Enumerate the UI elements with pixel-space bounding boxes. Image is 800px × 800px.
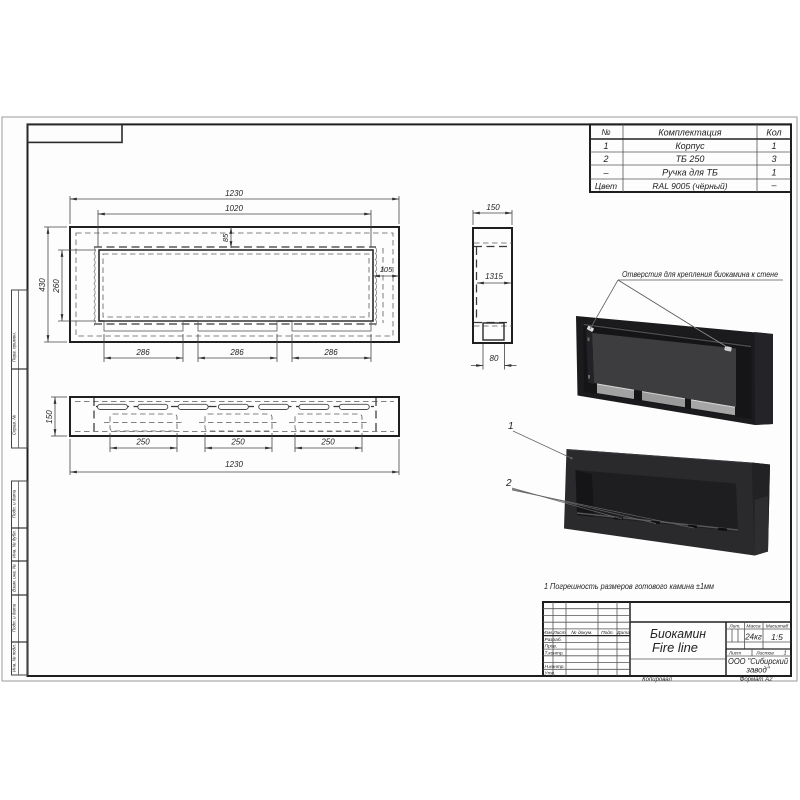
svg-text:Ручка для ТБ: Ручка для ТБ (662, 168, 718, 178)
svg-text:завод": завод" (745, 666, 770, 675)
svg-text:286: 286 (323, 348, 338, 357)
svg-text:Комплектация: Комплектация (658, 128, 721, 138)
svg-text:Кол: Кол (766, 128, 781, 138)
svg-text:–: – (770, 180, 777, 190)
svg-text:ТБ 250: ТБ 250 (676, 154, 705, 164)
svg-text:Инв. № подл.: Инв. № подл. (12, 644, 17, 672)
svg-text:Биокамин: Биокамин (650, 627, 706, 641)
svg-text:3: 3 (771, 154, 776, 164)
svg-text:–: – (602, 168, 609, 178)
svg-text:150: 150 (486, 203, 500, 212)
svg-text:1:5: 1:5 (771, 632, 783, 642)
svg-text:260: 260 (52, 279, 61, 294)
svg-text:Изм.: Изм. (543, 630, 553, 636)
svg-text:RAL 9005 (чёрный): RAL 9005 (чёрный) (652, 181, 727, 191)
svg-text:Перв. примен.: Перв. примен. (12, 332, 17, 362)
svg-text:Подп. и дата: Подп. и дата (12, 489, 17, 518)
svg-text:Разраб.: Разраб. (545, 637, 562, 643)
svg-text:1: 1 (771, 141, 776, 151)
svg-text:1315: 1315 (485, 272, 503, 281)
svg-text:430: 430 (38, 278, 47, 292)
svg-text:150: 150 (45, 410, 54, 424)
svg-text:1: 1 (508, 421, 514, 432)
svg-text:Копировал: Копировал (642, 677, 672, 683)
svg-text:Формат А2: Формат А2 (740, 677, 773, 683)
svg-text:Цвет: Цвет (595, 181, 617, 191)
svg-text:24кг: 24кг (744, 633, 762, 642)
svg-text:Пров.: Пров. (545, 644, 558, 650)
svg-text:80: 80 (490, 354, 499, 363)
svg-text:1020: 1020 (225, 204, 243, 213)
svg-text:№ докум.: № докум. (571, 630, 592, 636)
svg-text:2: 2 (602, 154, 608, 164)
svg-text:Fire line: Fire line (652, 641, 698, 655)
svg-text:Отверстия для крепления биокам: Отверстия для крепления биокамина к стен… (622, 270, 778, 279)
svg-text:Дата: Дата (616, 630, 630, 636)
svg-text:Утв.: Утв. (545, 671, 556, 677)
svg-text:1 Погрешность размеров готовог: 1 Погрешность размеров готового камина ±… (544, 582, 714, 591)
svg-text:Н.контр.: Н.контр. (545, 664, 565, 670)
svg-text:250: 250 (230, 438, 245, 447)
svg-text:1: 1 (783, 651, 786, 657)
svg-text:Листов: Листов (755, 651, 774, 657)
svg-text:250: 250 (135, 438, 150, 447)
svg-text:Инв. № дубл.: Инв. № дубл. (12, 530, 17, 558)
svg-text:85: 85 (221, 233, 230, 242)
svg-text:1230: 1230 (225, 189, 243, 198)
svg-text:Лист: Лист (552, 630, 565, 636)
svg-text:Масса: Масса (746, 624, 761, 630)
svg-text:Масштаб: Масштаб (766, 624, 789, 630)
svg-text:286: 286 (135, 348, 150, 357)
svg-text:Взам. инв. №: Взам. инв. № (12, 564, 17, 592)
svg-text:Подп. и дата: Подп. и дата (12, 603, 17, 632)
svg-text:250: 250 (320, 438, 335, 447)
svg-text:2: 2 (505, 478, 512, 489)
svg-text:105: 105 (380, 265, 393, 274)
svg-text:Т.контр.: Т.контр. (545, 650, 564, 656)
svg-text:№: № (601, 127, 610, 137)
svg-text:Подп.: Подп. (601, 630, 614, 636)
svg-text:1: 1 (603, 141, 608, 151)
svg-text:Корпус: Корпус (675, 141, 705, 151)
svg-text:Лит.: Лит. (728, 624, 740, 630)
svg-text:Справ. №: Справ. № (12, 415, 17, 436)
svg-text:286: 286 (229, 348, 244, 357)
svg-text:1230: 1230 (225, 460, 243, 469)
svg-text:1: 1 (771, 168, 776, 178)
svg-text:Лист: Лист (728, 651, 741, 657)
